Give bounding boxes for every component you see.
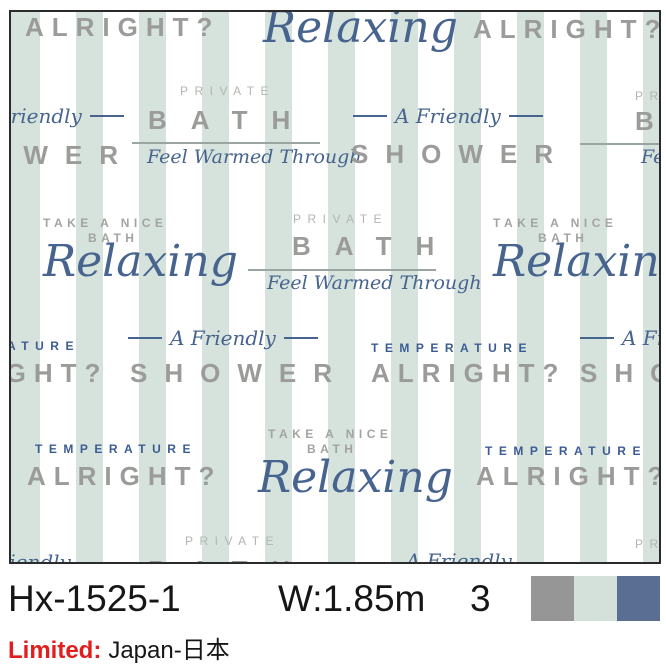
- pattern-text-feel-warmed: Feel Warmed Through: [267, 274, 482, 293]
- pattern-text-private: PRIVATE: [185, 535, 280, 547]
- pattern-text-private: PRIVATE: [293, 213, 388, 225]
- decorative-dash: [580, 337, 614, 339]
- pattern-text-alright: ALRIGHT?: [371, 360, 566, 386]
- pattern-text-alright: ALRIGHT?: [25, 14, 220, 40]
- decorative-dash: [509, 115, 543, 117]
- decorative-dash: [128, 337, 162, 339]
- pattern-text-bath: BATH: [148, 107, 314, 133]
- limited-value: Japan-日本: [108, 630, 229, 665]
- pattern-text-alright: ALRIGHT?: [476, 463, 661, 489]
- decorative-dash: [90, 115, 124, 117]
- pattern-text-take-a-nice: TAKE A NICE: [43, 217, 167, 229]
- wallpaper-pattern-panel: ALRIGHT? Relaxing ALRIGHT? A Friendly SH…: [9, 10, 661, 564]
- pattern-text-relaxing: Relaxing: [43, 240, 238, 284]
- pattern-text-a-friendly: A Friendly: [353, 106, 543, 126]
- pattern-text-alright: ALRIGHT?: [473, 16, 661, 42]
- bath-underline: [248, 269, 436, 271]
- pattern-text-relaxing: Relaxing: [258, 456, 453, 500]
- product-image: ALRIGHT? Relaxing ALRIGHT? A Friendly SH…: [0, 0, 666, 670]
- pattern-text-a-friendly: A Friendly: [580, 328, 661, 348]
- limited-label: Limited:: [8, 637, 101, 665]
- product-width: W:1.85m: [278, 578, 425, 620]
- pattern-text-a-friendly: A Friendly: [128, 328, 318, 348]
- pattern-text-private: PRIVATE: [635, 538, 661, 550]
- pattern-text-a-friendly-label: A Friendly: [9, 106, 82, 126]
- colorway-swatch-blue: [617, 576, 660, 621]
- colorway-swatch-gray: [531, 576, 574, 621]
- pattern-text-bath: BATH: [292, 233, 458, 259]
- pattern-text-feel-warmed: Feel Warmed Through: [641, 148, 661, 167]
- pattern-text-feel-warmed: Feel Warmed Through: [147, 148, 362, 167]
- pattern-text-temperature: TEMPERATURE: [485, 445, 647, 457]
- pattern-text-shower: SHOWER: [580, 360, 661, 386]
- pattern-text-a-friendly-label: A Friendly: [395, 106, 501, 126]
- pattern-text-a-friendly-clipped: A Friendly: [9, 552, 71, 564]
- pattern-text-a-friendly-clipped: A Friendly: [406, 551, 512, 564]
- colorway-swatch-mint: [574, 576, 617, 621]
- pattern-text-take-a-nice: TAKE A NICE: [493, 217, 617, 229]
- bath-underline: [580, 143, 661, 145]
- pattern-text-bath: BATH: [148, 557, 314, 564]
- pattern-text-shower: SHOWER: [9, 142, 135, 168]
- pattern-text-private: PRIVATE: [635, 90, 661, 102]
- pattern-text-bath: BATH: [635, 108, 661, 134]
- pattern-text-relaxing: Relaxing: [263, 10, 458, 50]
- pattern-text-a-friendly: A Friendly: [9, 106, 124, 126]
- pattern-text-take-a-nice: TAKE A NICE: [268, 428, 392, 440]
- pattern-text-a-friendly-label: A Friendly: [170, 328, 276, 348]
- product-code: Hx-1525-1: [8, 578, 181, 620]
- bath-underline: [132, 142, 320, 144]
- pattern-text-shower: SHOWER: [130, 360, 349, 386]
- pattern-text-temperature: TEMPERATURE: [35, 443, 197, 455]
- pattern-text-alright: ALRIGHT?: [9, 360, 108, 386]
- pattern-text-shower: SHOWER: [351, 141, 570, 167]
- pattern-text-private: PRIVATE: [180, 85, 275, 97]
- pattern-text-bath: BATH: [645, 558, 661, 564]
- decorative-dash: [353, 115, 387, 117]
- colorway-swatches: [531, 576, 660, 621]
- decorative-dash: [284, 337, 318, 339]
- pattern-text-temperature: TEMPERATURE: [9, 340, 80, 352]
- limited-edition-row: Limited: Japan-日本: [8, 630, 230, 665]
- colorway-count: 3: [470, 578, 491, 620]
- pattern-text-a-friendly-label: A Friendly: [622, 328, 661, 348]
- product-info-row: Hx-1525-1 W:1.85m 3: [8, 578, 658, 624]
- pattern-text-relaxing: Relaxing: [493, 240, 661, 284]
- pattern-text-alright: ALRIGHT?: [27, 463, 222, 489]
- pattern-text-temperature: TEMPERATURE: [371, 342, 533, 354]
